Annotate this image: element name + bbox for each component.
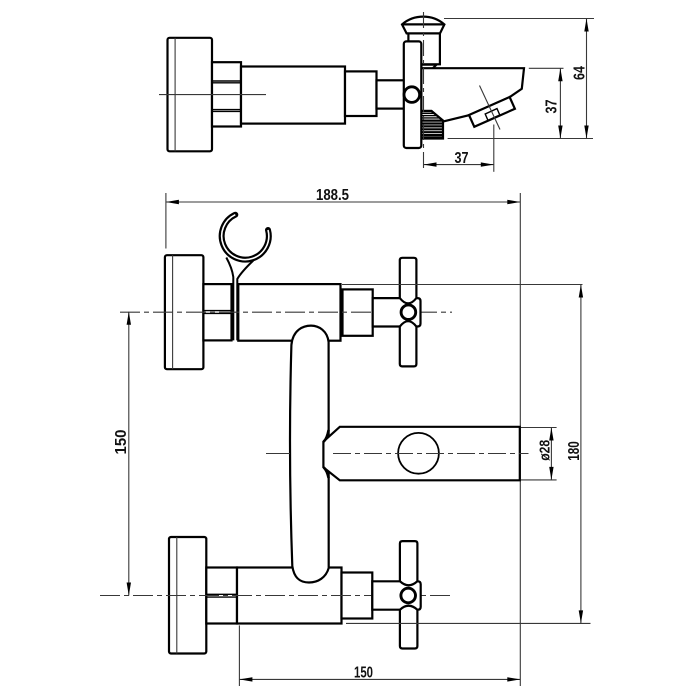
svg-text:150: 150 <box>113 429 130 454</box>
svg-text:64: 64 <box>572 66 589 80</box>
svg-text:37: 37 <box>455 150 469 167</box>
svg-text:ø28: ø28 <box>537 440 554 461</box>
svg-text:37: 37 <box>544 99 561 113</box>
svg-text:150: 150 <box>354 665 373 682</box>
svg-text:188.5: 188.5 <box>316 187 349 204</box>
svg-text:180: 180 <box>566 441 583 461</box>
